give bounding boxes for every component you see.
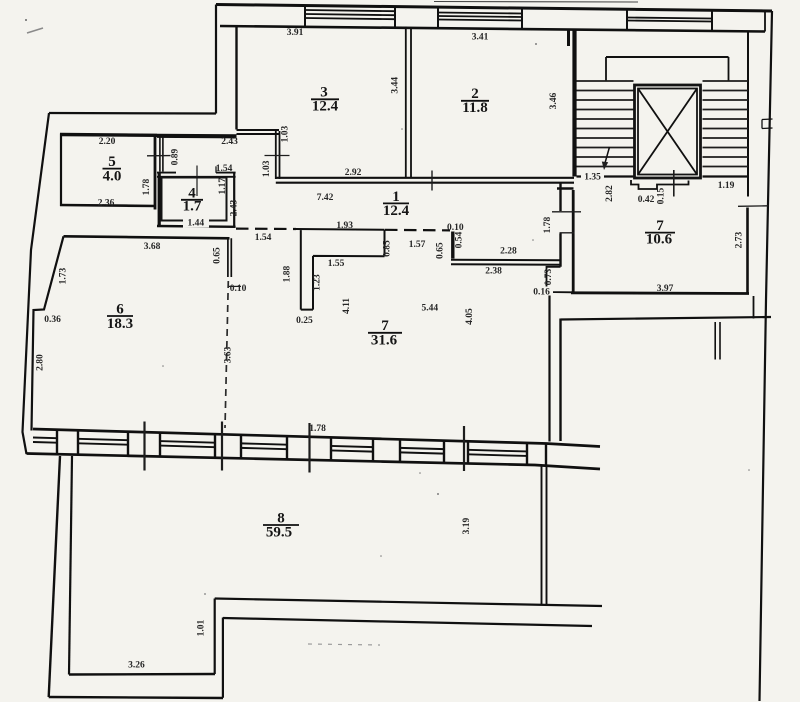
svg-text:2.38: 2.38 <box>485 267 502 277</box>
svg-text:0.73: 0.73 <box>544 268 554 285</box>
svg-text:0.15: 0.15 <box>657 187 667 204</box>
svg-text:0.36: 0.36 <box>44 315 61 325</box>
svg-text:1.03: 1.03 <box>262 160 272 177</box>
svg-text:2.28: 2.28 <box>500 247 517 257</box>
svg-text:0.10: 0.10 <box>447 223 464 233</box>
svg-text:3.19: 3.19 <box>462 517 472 534</box>
svg-text:2.36: 2.36 <box>98 199 115 209</box>
svg-text:59.5: 59.5 <box>266 525 292 541</box>
svg-text:3.46: 3.46 <box>549 92 559 109</box>
svg-text:4.0: 4.0 <box>103 169 122 185</box>
svg-text:0.42: 0.42 <box>638 195 655 205</box>
svg-text:1.55: 1.55 <box>328 259 345 269</box>
svg-text:2.43: 2.43 <box>229 199 239 216</box>
svg-text:3.26: 3.26 <box>128 660 145 670</box>
svg-text:1.7: 1.7 <box>183 199 202 215</box>
svg-text:31.6: 31.6 <box>371 333 398 349</box>
svg-text:3.41: 3.41 <box>472 33 489 43</box>
svg-text:1.73: 1.73 <box>59 267 69 284</box>
svg-text:2.73: 2.73 <box>735 231 745 248</box>
svg-text:12.4: 12.4 <box>312 99 339 115</box>
svg-text:2.80: 2.80 <box>35 354 45 371</box>
svg-text:1.23: 1.23 <box>312 274 322 291</box>
svg-text:3.68: 3.68 <box>144 242 161 252</box>
svg-text:3.44: 3.44 <box>391 77 401 94</box>
svg-text:0.54: 0.54 <box>455 231 465 248</box>
svg-text:4.11: 4.11 <box>342 298 352 314</box>
svg-text:0.85: 0.85 <box>382 240 392 257</box>
svg-text:2.92: 2.92 <box>345 168 362 178</box>
svg-text:1.54: 1.54 <box>216 164 233 174</box>
svg-text:2.82: 2.82 <box>605 185 615 202</box>
svg-text:1.03: 1.03 <box>281 125 291 142</box>
svg-text:10.6: 10.6 <box>646 232 673 248</box>
svg-text:3.91: 3.91 <box>287 28 304 38</box>
svg-text:0.65: 0.65 <box>436 242 446 259</box>
svg-text:7.42: 7.42 <box>317 193 334 203</box>
svg-text:3.97: 3.97 <box>657 284 674 294</box>
svg-text:1.78: 1.78 <box>142 178 152 195</box>
svg-text:1.35: 1.35 <box>584 173 601 183</box>
svg-text:1.78: 1.78 <box>309 424 326 434</box>
svg-text:1.57: 1.57 <box>409 240 426 250</box>
svg-text:2.43: 2.43 <box>221 137 238 147</box>
svg-text:0.16: 0.16 <box>533 288 550 298</box>
svg-text:2.20: 2.20 <box>99 137 116 147</box>
svg-text:1.88: 1.88 <box>283 265 293 282</box>
svg-text:3.63: 3.63 <box>224 346 234 363</box>
svg-text:1.54: 1.54 <box>255 233 272 243</box>
svg-text:0.65: 0.65 <box>212 247 222 264</box>
svg-text:1.44: 1.44 <box>187 219 204 229</box>
svg-text:0.89: 0.89 <box>171 148 181 165</box>
svg-text:0.25: 0.25 <box>296 316 313 326</box>
svg-text:4.05: 4.05 <box>465 308 475 325</box>
svg-text:11.8: 11.8 <box>462 100 487 116</box>
svg-text:1.78: 1.78 <box>543 216 553 233</box>
svg-text:12.4: 12.4 <box>383 203 410 219</box>
svg-text:1.01: 1.01 <box>197 619 207 636</box>
svg-text:18.3: 18.3 <box>107 316 133 332</box>
svg-text:1.93: 1.93 <box>336 221 353 231</box>
svg-text:1.19: 1.19 <box>718 181 735 191</box>
svg-text:1.17: 1.17 <box>218 178 228 195</box>
svg-text:5.44: 5.44 <box>421 304 438 314</box>
svg-text:0.10: 0.10 <box>230 284 247 294</box>
